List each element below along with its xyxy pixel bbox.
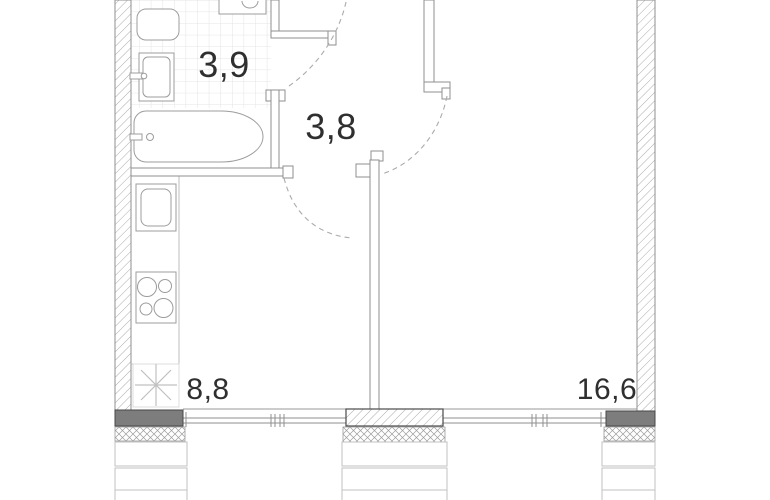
balcony-slab-right xyxy=(602,442,655,466)
balcony-slab-right xyxy=(602,468,655,490)
partition-wall xyxy=(370,160,379,411)
right-exterior-wall xyxy=(637,0,655,412)
dark-wall-segment-right xyxy=(606,411,655,426)
bathtub-faucet-knob xyxy=(147,134,154,141)
balcony-slab-left xyxy=(115,468,187,490)
sink-faucet-knob xyxy=(141,73,147,79)
sink-faucet-icon xyxy=(130,73,142,79)
insulation-band-center xyxy=(343,427,445,442)
balcony-slab-left xyxy=(115,442,187,466)
floor-plan: 3,9 3,8 8,8 16,6 xyxy=(0,0,770,500)
floor-plan-drawing: 3,9 3,8 8,8 16,6 xyxy=(0,0,770,500)
bathtub-faucet-icon xyxy=(130,134,142,140)
door-jamb xyxy=(356,164,371,177)
room-label-hallway: 3,8 xyxy=(305,106,357,147)
stove-burner xyxy=(138,278,157,297)
door-jamb xyxy=(283,166,293,178)
center-wall-pier xyxy=(346,409,443,426)
stove-burner xyxy=(154,299,173,318)
door-jamb xyxy=(442,88,450,99)
stove-burner xyxy=(140,303,152,315)
bathroom-wall-lower xyxy=(271,90,279,170)
room-label-kitchen: 8,8 xyxy=(186,373,229,406)
dark-wall-segment-left xyxy=(115,410,183,426)
bathroom-top-stub-wall xyxy=(271,31,335,38)
snowflake-symbol xyxy=(135,364,177,406)
room-label-bathroom: 3,9 xyxy=(198,44,250,85)
kitchen-sink-basin xyxy=(141,189,171,226)
insulation-band-right xyxy=(604,427,655,441)
insulation-band-left xyxy=(115,427,185,441)
toilet-icon xyxy=(137,9,179,40)
left-exterior-wall xyxy=(115,0,131,411)
stove-burner xyxy=(159,280,172,293)
room-label-living-room: 16,6 xyxy=(577,373,637,406)
balcony-slab-center xyxy=(342,468,447,490)
balcony-slab-center xyxy=(342,442,447,466)
hallway-right-wall xyxy=(424,0,434,90)
bathroom-bottom-wall xyxy=(131,168,293,176)
